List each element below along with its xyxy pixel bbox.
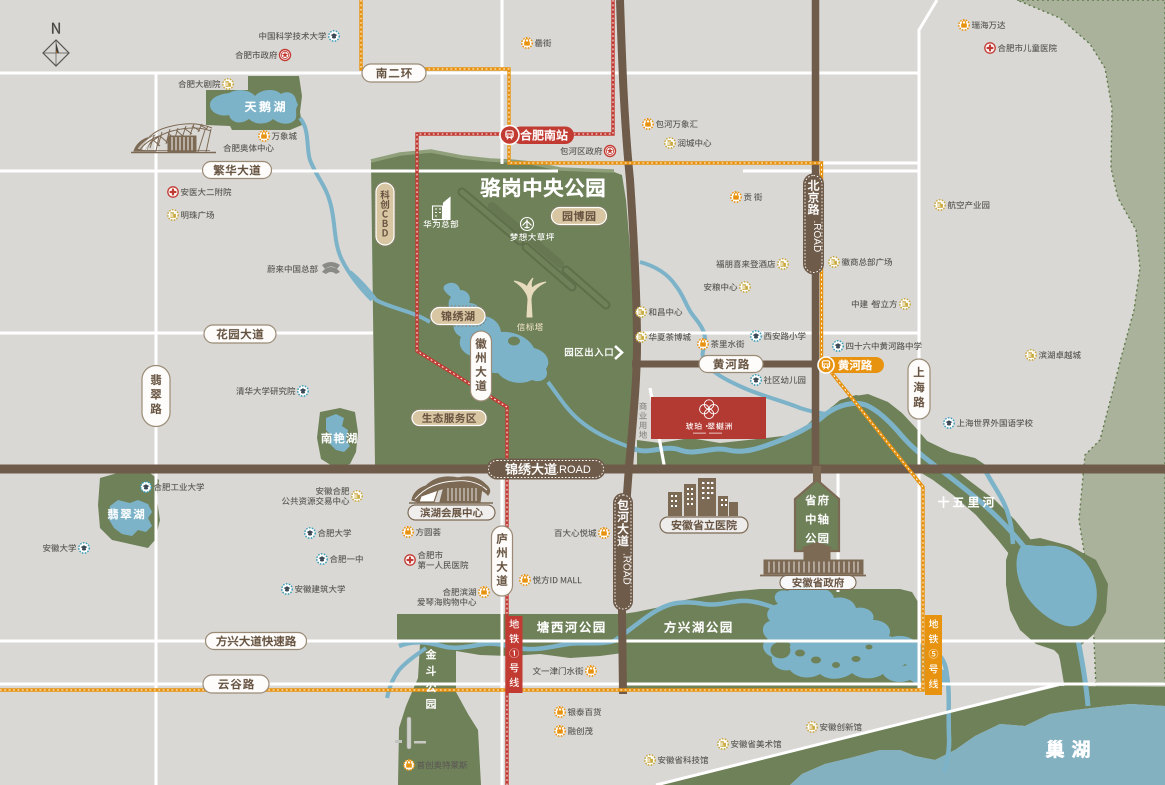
svg-text:.ROAD: .ROAD <box>811 221 822 253</box>
svg-text:.ROAD: .ROAD <box>556 464 591 476</box>
svg-text:.ROAD: .ROAD <box>621 553 632 585</box>
